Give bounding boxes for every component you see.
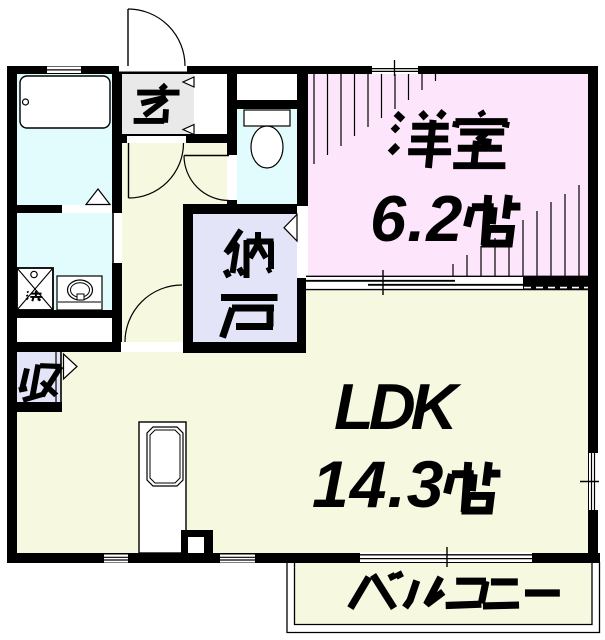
svg-text:6.2: 6.2: [370, 182, 463, 255]
svg-text:LDK: LDK: [334, 370, 462, 443]
svg-text:14.3: 14.3: [312, 447, 444, 521]
